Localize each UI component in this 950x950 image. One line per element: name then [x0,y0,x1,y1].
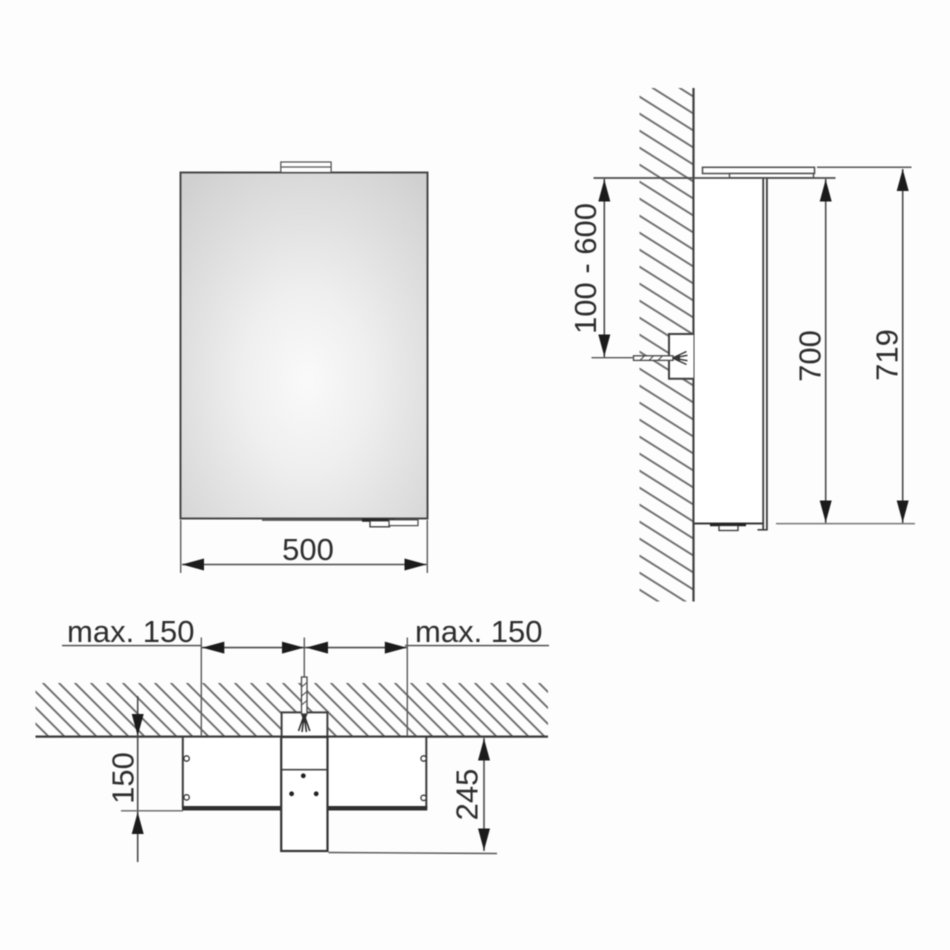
svg-text:max. 150: max. 150 [67,614,195,649]
svg-text:700: 700 [793,330,828,382]
svg-text:150: 150 [106,752,141,804]
svg-text:719: 719 [870,329,905,381]
svg-text:500: 500 [282,532,334,567]
svg-text:245: 245 [450,769,485,821]
svg-text:100 - 600: 100 - 600 [568,203,603,334]
svg-text:max. 150: max. 150 [415,614,543,649]
